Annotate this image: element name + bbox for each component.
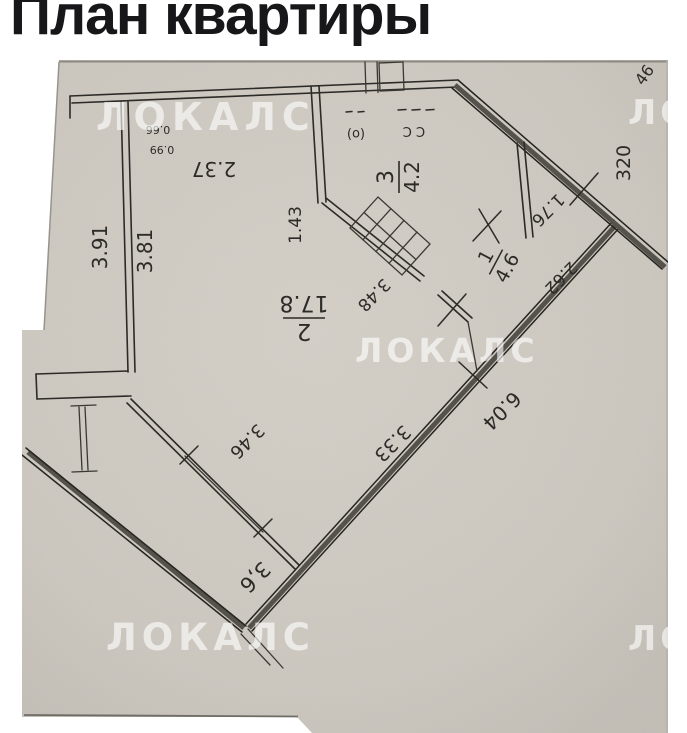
dim-small-lower: 0.99 [150,143,175,156]
watermark-top-left: ЛОКАЛС [96,95,316,139]
dim-hall-wall: 1.43 [286,206,306,244]
room-3-area: 4.2 [400,161,424,193]
fixture-mark-b: С С [403,123,425,138]
dim-left-inner: 3.81 [133,229,157,274]
room-2-number: 2 [297,318,312,344]
page: План квартиры [0,0,687,733]
watermark-bottom-left: ЛОКАЛС [106,616,315,659]
page-title: План квартиры [10,0,431,48]
dim-left-outer: 3.91 [88,225,112,270]
watermark-bottom-right-partial: ЛОКАЛС [628,619,668,659]
room-3-number: 3 [374,170,399,184]
floorplan-photo: 2 17.8 3 4.2 1 4.6 3.91 3.81 2.37 0.66 0… [22,60,668,733]
room-2-area: 17.8 [280,290,329,315]
dim-right-outer: 320 [613,145,635,181]
watermark-center: ЛОКАЛС [355,331,539,370]
watermark-right-partial: ЛОКАЛС [628,93,668,133]
fixture-mark-a: (о) [347,126,365,141]
dim-top-width: 2.37 [192,157,237,181]
